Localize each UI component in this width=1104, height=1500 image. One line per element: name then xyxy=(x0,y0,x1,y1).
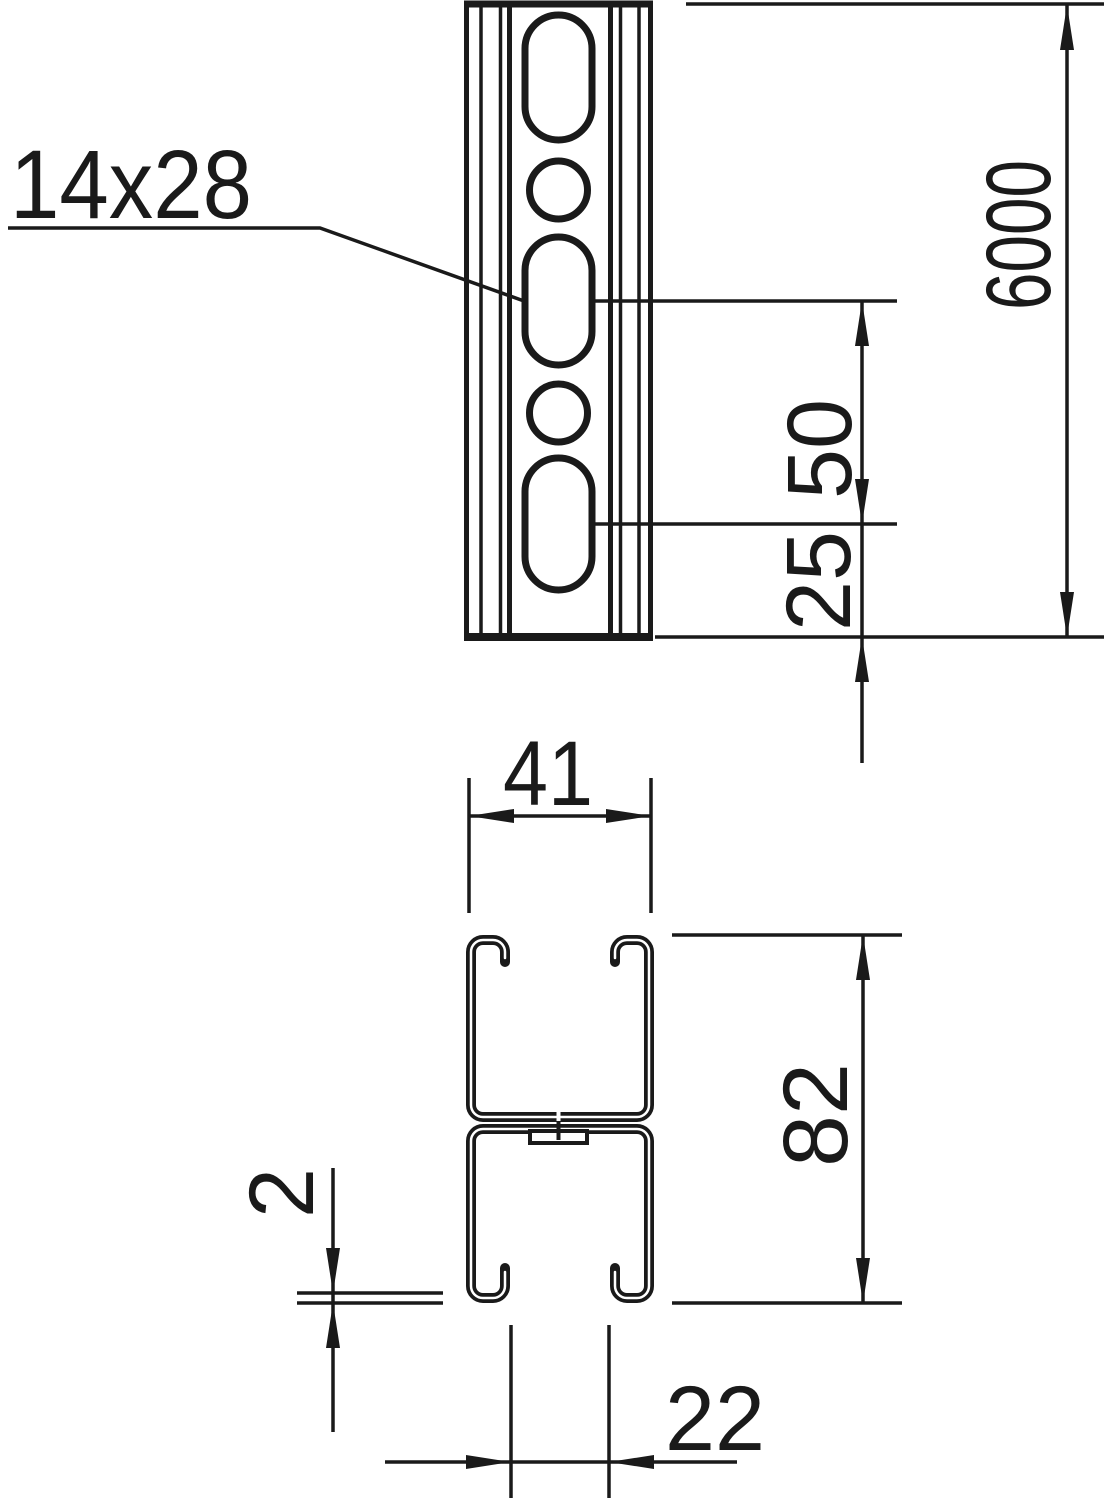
dimension-end-distance-25: 25 xyxy=(768,531,870,682)
front-view-perforation xyxy=(525,15,592,590)
label-slot-pitch: 50 xyxy=(769,399,871,499)
section-profile xyxy=(471,940,649,1298)
label-profile-width: 41 xyxy=(503,723,593,825)
drawing-sheet: 14x28 6000 50 25 41 xyxy=(0,0,1104,1500)
round-hole xyxy=(530,384,588,442)
dimension-width-41: 41 xyxy=(469,723,651,913)
label-wall-thickness: 2 xyxy=(231,1168,333,1218)
dimension-thickness-2: 2 xyxy=(231,1168,443,1432)
bottom-channel xyxy=(471,1129,649,1298)
dimension-height-82: 82 xyxy=(672,935,902,1303)
label-slot-size: 14x28 xyxy=(10,130,252,239)
label-profile-length: 6000 xyxy=(968,160,1070,310)
front-view-rail xyxy=(464,4,653,637)
round-hole xyxy=(530,161,588,219)
slot-hole xyxy=(525,458,592,590)
dimension-slot-opening-22: 22 xyxy=(385,1325,765,1498)
dimension-length-6000: 6000 xyxy=(655,4,1104,637)
label-profile-height: 82 xyxy=(765,1063,867,1167)
slot-size-callout: 14x28 xyxy=(8,130,524,301)
label-slot-opening: 22 xyxy=(665,1368,765,1470)
slot-hole xyxy=(525,237,592,365)
top-channel xyxy=(471,940,649,1117)
label-slot-end-distance: 25 xyxy=(768,531,870,631)
technical-drawing: 14x28 6000 50 25 41 xyxy=(0,0,1104,1500)
slot-hole xyxy=(525,15,592,140)
